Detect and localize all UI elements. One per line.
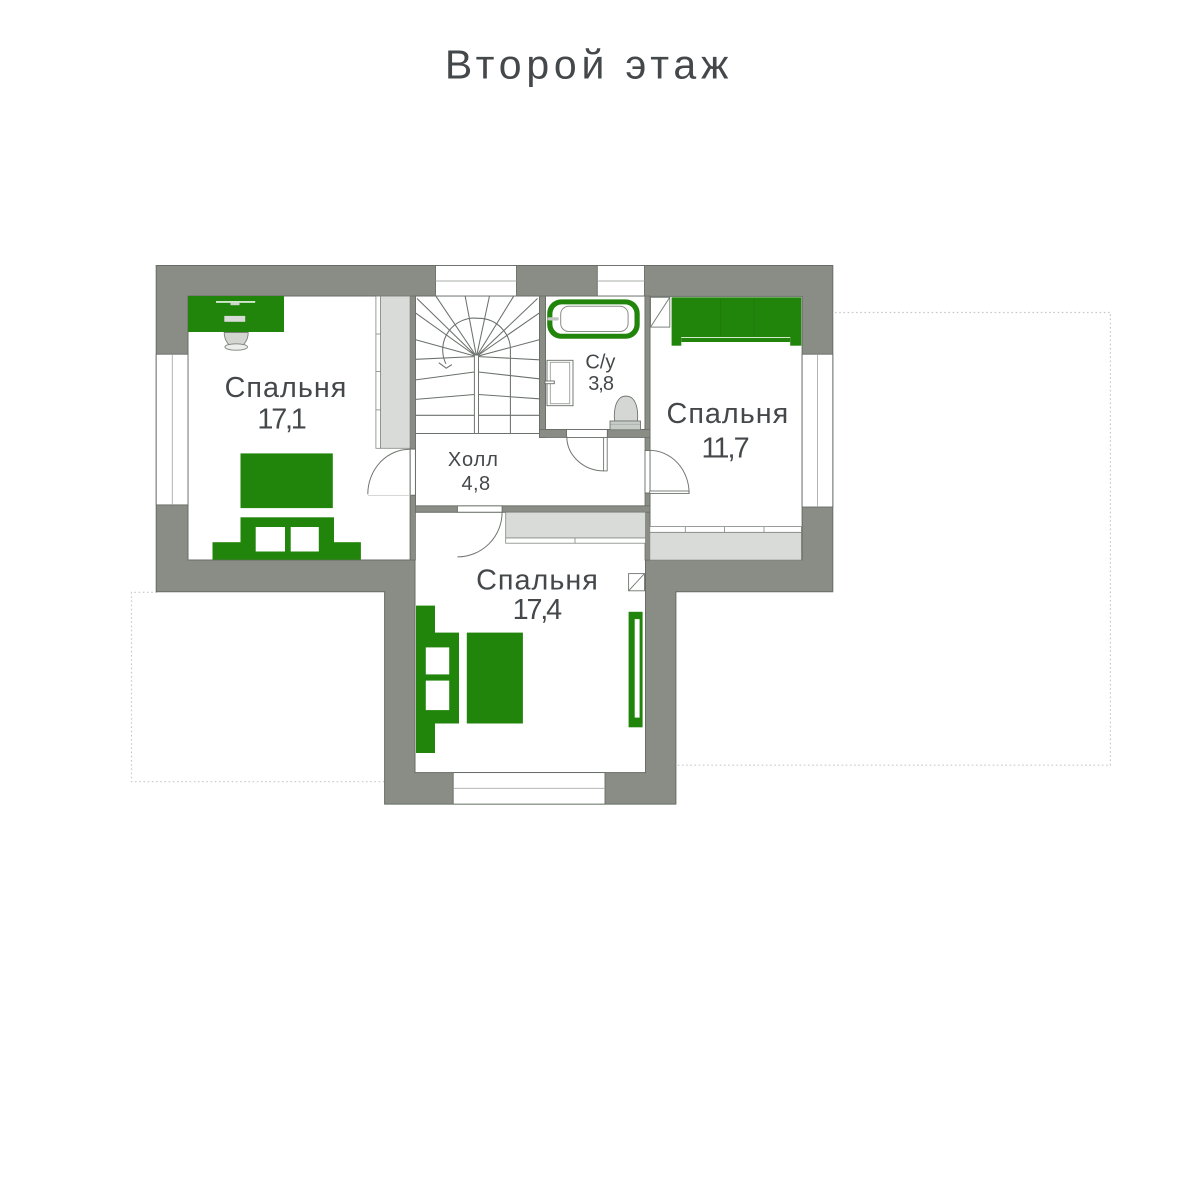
svg-text:3,8: 3,8 xyxy=(588,373,614,395)
svg-text:Спальня: Спальня xyxy=(476,565,599,597)
svg-text:Второй этаж: Второй этаж xyxy=(445,42,733,88)
svg-text:Холл: Холл xyxy=(448,449,499,471)
svg-text:17,4: 17,4 xyxy=(513,594,562,626)
svg-text:17,1: 17,1 xyxy=(257,404,305,436)
svg-text:Спальня: Спальня xyxy=(667,398,790,430)
svg-text:Спальня: Спальня xyxy=(225,372,348,404)
svg-text:11,7: 11,7 xyxy=(701,432,748,464)
svg-text:4,8: 4,8 xyxy=(461,473,490,495)
svg-text:С/у: С/у xyxy=(585,352,615,374)
